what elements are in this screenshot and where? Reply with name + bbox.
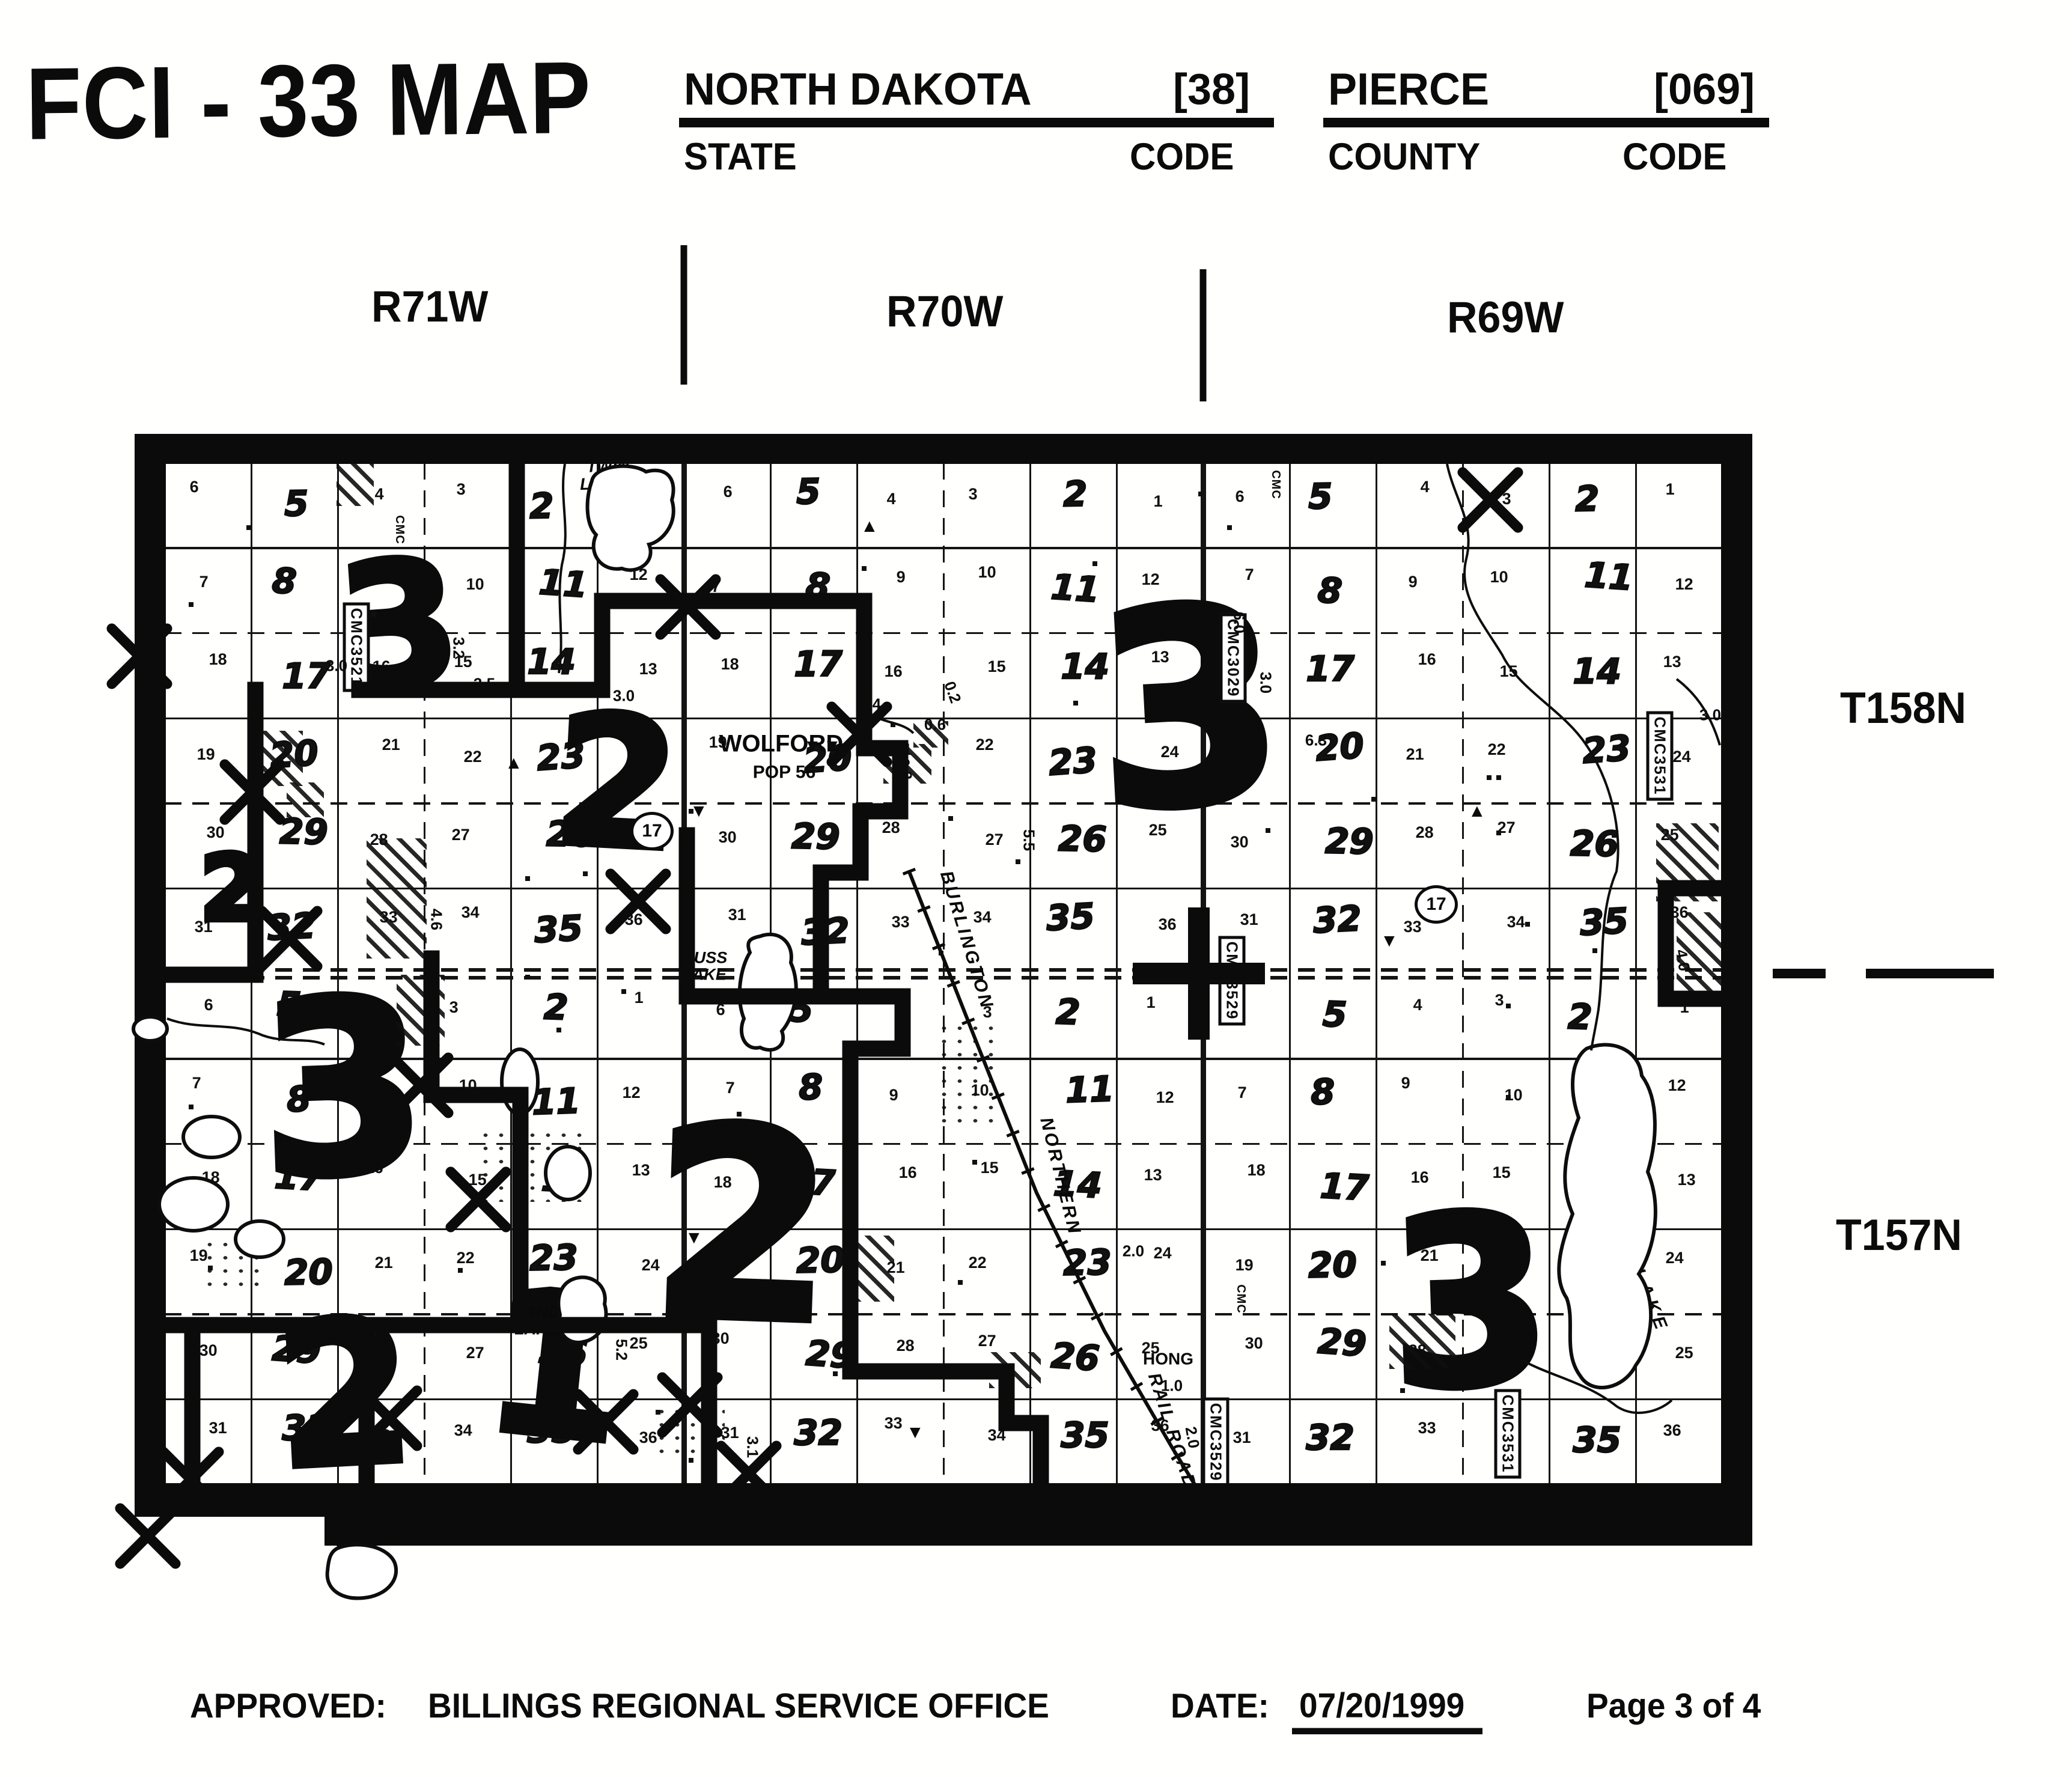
footer-date-value: 07/20/1999 — [1292, 1685, 1482, 1734]
zone-boundaries — [165, 464, 1722, 1484]
footer-approved-label: APPROVED: — [190, 1685, 386, 1725]
railroad-line — [909, 870, 1195, 1484]
map-linework — [0, 0, 2072, 1777]
footer-approved-value: BILLINGS REGIONAL SERVICE OFFICE — [428, 1685, 1049, 1725]
footer-date-label: DATE: — [1171, 1685, 1269, 1725]
footer-page-number: Page 3 of 4 — [1586, 1685, 1761, 1725]
streams — [167, 464, 1720, 1413]
x-marks — [112, 472, 1518, 1564]
scanned-map-page: FCI - 33 MAP NORTH DAKOTA [38] STATE COD… — [0, 0, 2072, 1777]
plus-mark — [1144, 918, 1254, 1029]
range-ticks — [684, 245, 1994, 974]
